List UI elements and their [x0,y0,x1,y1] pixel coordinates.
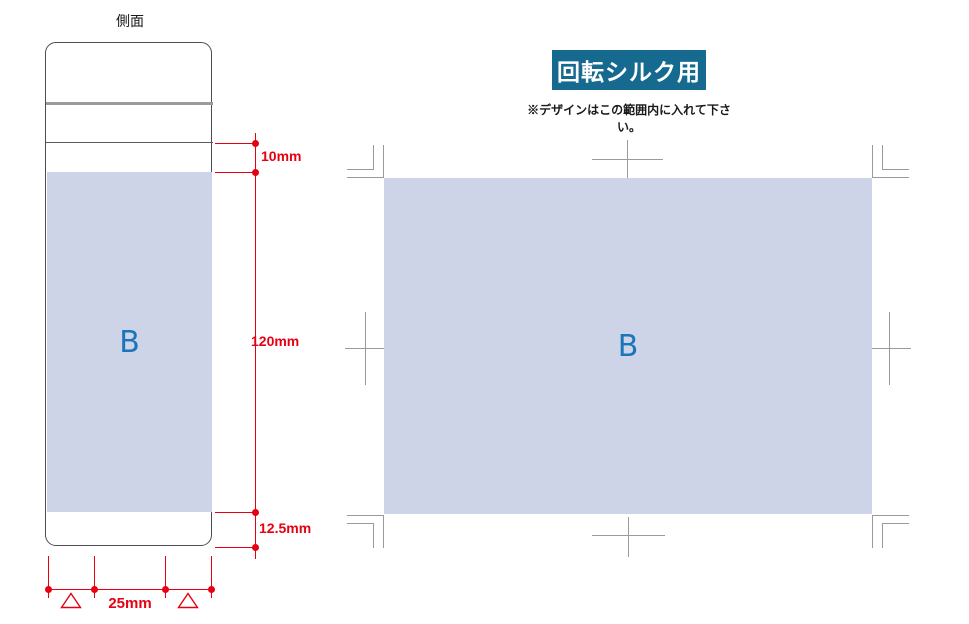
bottom-scale-line [48,589,212,590]
dim-label-bottom-width: 25mm [98,596,162,611]
trim-line [872,177,909,178]
trim-mark-center-left [345,312,384,385]
side-print-area-marker: B [119,325,140,360]
trim-mark-center-top [592,140,663,178]
scale-point [162,586,169,593]
trim-mark-center-right [872,312,911,385]
trim-line [347,523,374,524]
bottle-cap-joint-line [46,102,213,105]
registration-triangle-right [177,592,199,609]
trim-line [872,515,873,548]
scale-point [208,586,215,593]
trim-line [882,523,909,524]
trim-line [872,145,873,178]
side-view-label: 側面 [95,11,165,31]
dimension-point [252,509,259,516]
print-method-title: 回転シルク用 [552,50,706,90]
trim-line [889,312,890,385]
scale-point [91,586,98,593]
dim-label-bottom-margin: 12.5mm [259,521,311,535]
trim-line [383,515,384,548]
trim-line [872,348,911,349]
trim-mark-corner-bottom-left [347,515,384,548]
dimension-point [252,544,259,551]
dimension-leader-top-inner [215,172,256,173]
dimension-leader-bottom-outer [215,547,256,548]
bottle-neck-line [46,142,213,143]
scale-point [45,586,52,593]
trim-mark-center-bottom [592,517,665,557]
registration-triangle-left [60,592,82,609]
trim-line [872,515,909,516]
trim-line [882,169,909,170]
trim-line [882,523,883,548]
dimension-point [252,169,259,176]
trim-line [373,523,374,548]
trim-line [365,312,366,385]
design-range-note: ※デザインはこの範囲内に入れて下さい。 [519,101,739,135]
dimension-leader-bottom-inner [215,512,256,513]
trim-mark-corner-top-right [872,145,909,178]
trim-line [628,517,629,557]
trim-line [373,145,374,170]
dim-label-top-margin: 10mm [261,149,301,163]
design-print-area: B [384,178,872,514]
trim-line [347,177,384,178]
trim-line [347,515,384,516]
dimension-point [252,140,259,147]
print-template-sheet: 側面 B 10mm 120mm 12.5mm 25mm 回転シルク用 ※デザイン… [0,0,969,624]
trim-line [383,145,384,178]
trim-mark-corner-top-left [347,145,384,178]
side-print-area: B [47,172,212,512]
design-print-area-marker: B [618,329,639,364]
trim-mark-corner-bottom-right [872,515,909,548]
dim-label-print-height: 120mm [251,334,299,348]
dimension-leader-top-outer [215,143,256,144]
trim-line [882,145,883,170]
trim-line [627,140,628,178]
trim-line [347,169,374,170]
